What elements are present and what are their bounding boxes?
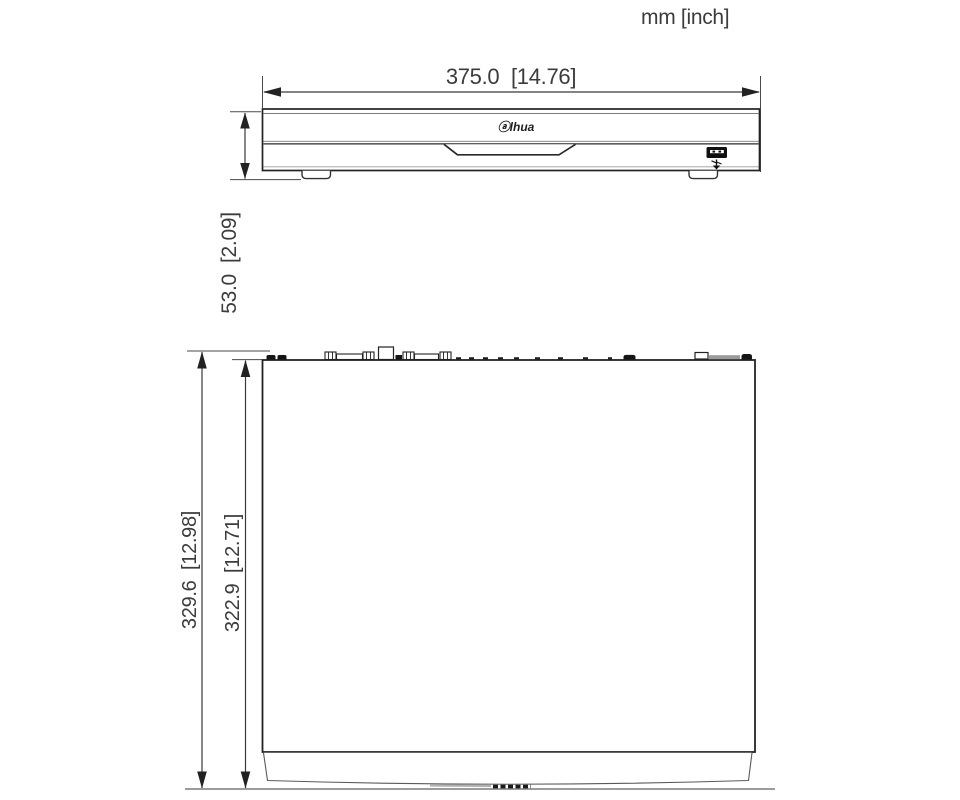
rear-gray-bar (709, 355, 740, 359)
arrowhead-left (263, 87, 281, 97)
rear-connector-ribbed (363, 352, 374, 360)
rear-bump (278, 355, 287, 360)
rear-connector-ribbed (440, 352, 451, 360)
usb-pin (713, 151, 716, 153)
rear-connector-vga (415, 354, 439, 360)
arrowhead-right (742, 87, 760, 97)
front-panel-notch (444, 144, 576, 155)
device-top-face (263, 347, 756, 787)
rear-bump (624, 355, 636, 360)
top-view (185, 347, 775, 789)
rear-connector-ribbed (325, 352, 336, 360)
rear-connector-outlined (695, 353, 708, 360)
units-label: mm [inch] (641, 6, 729, 30)
usb-slot (710, 150, 724, 153)
rear-connector-ribbed (403, 352, 414, 360)
arrowhead-up (240, 113, 250, 129)
top-body-outline (263, 360, 756, 752)
arrowhead-down (241, 772, 251, 789)
dimension-drawing-page: mm [inch] 375.0 [14.76] 53.0 [2.09] 329.… (0, 0, 960, 800)
flange-gray-segment (430, 785, 491, 786)
usb-pin (719, 151, 722, 153)
rear-bump (742, 354, 753, 360)
rear-bump (267, 355, 276, 360)
arrowhead-up (241, 360, 251, 377)
front-width-dimension-label: 375.0 [14.76] (396, 64, 626, 90)
arrowhead-down (197, 772, 207, 789)
rear-connector-small (396, 355, 403, 360)
arrowhead-down (240, 163, 250, 179)
front-view (230, 76, 761, 180)
arrowhead-up (197, 352, 207, 369)
technical-drawing (0, 0, 960, 800)
top-body-depth-label: 322.9 [12.71] (222, 496, 244, 650)
front-flange (264, 753, 753, 787)
flange-outline (264, 753, 753, 784)
top-overall-depth-label: 329.6 [12.98] (179, 493, 201, 647)
rear-connector-vga (337, 354, 363, 360)
front-height-dimension-label: 53.0 [2.09] (218, 188, 240, 338)
dahua-logo: ⓐlhua (497, 118, 535, 135)
front-foot-right (689, 171, 718, 179)
front-foot-left (302, 171, 331, 179)
rear-connector-tall (379, 347, 394, 360)
rear-connectors (267, 347, 753, 360)
